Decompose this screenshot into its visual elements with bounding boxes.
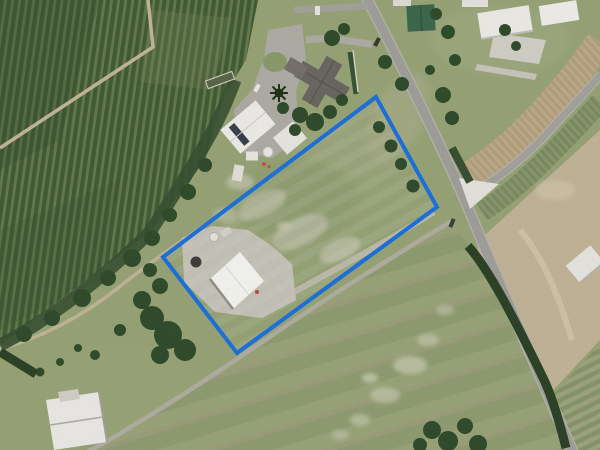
aerial-imagery-canvas xyxy=(0,0,600,450)
photo-grain-overlay xyxy=(0,0,600,450)
aerial-map[interactable] xyxy=(0,0,600,450)
